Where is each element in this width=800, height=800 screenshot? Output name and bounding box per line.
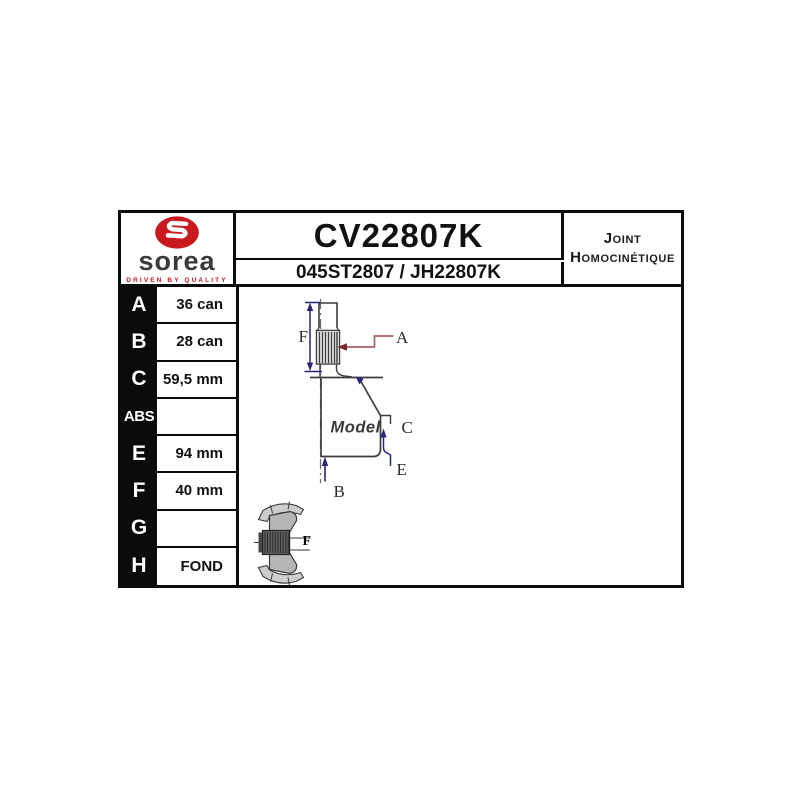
part-number-cell: CV22807K — [236, 213, 564, 260]
arrow-up-icon — [322, 457, 328, 466]
dim-label-c: C — [402, 418, 413, 437]
spec-value: 59,5 mm — [157, 362, 236, 397]
arrow-up-icon — [307, 303, 313, 312]
joint-body-outline — [310, 378, 383, 457]
dim-label-a: A — [396, 328, 409, 347]
spec-row-a: A 36 can — [121, 287, 236, 324]
spec-row-h: H FOND — [121, 548, 236, 585]
spec-key: E — [121, 436, 157, 471]
leader-a: A — [338, 328, 410, 351]
spec-key: G — [121, 511, 157, 546]
spline-hatch — [320, 332, 338, 363]
spec-key: ABS — [121, 399, 157, 434]
model-label: Model — [331, 419, 381, 437]
spec-table: A 36 can B 28 can C 59,5 mm ABS E 94 mm … — [121, 287, 239, 585]
diagram-area: F A B C E — [239, 287, 681, 585]
spec-key: B — [121, 324, 157, 359]
reference-codes: 045ST2807 / JH22807K — [296, 262, 501, 284]
product-type-cell: Joint Homocinétique — [564, 213, 681, 284]
stub-shaft — [317, 303, 353, 378]
logo-s-glyph — [168, 223, 186, 236]
cross-section-icon: F — [254, 502, 311, 586]
dimension-b: B — [322, 457, 345, 501]
spec-value — [157, 511, 236, 546]
spec-key: F — [121, 473, 157, 508]
part-number: CV22807K — [314, 217, 483, 255]
arrow-down-icon — [307, 363, 313, 372]
dim-label-e: E — [397, 460, 407, 479]
spec-value: 28 can — [157, 324, 236, 359]
icon-label-f: F — [303, 534, 312, 549]
spec-key: H — [121, 548, 157, 585]
logo-tagline-text: DRIVEN BY QUALITY — [126, 277, 227, 284]
spec-row-c: C 59,5 mm — [121, 362, 236, 399]
product-type-line1: Joint — [604, 230, 642, 249]
cv-joint-diagram: F A B C E — [239, 287, 681, 585]
spec-value: FOND — [157, 548, 236, 585]
spec-value: 94 mm — [157, 436, 236, 471]
spec-value: 40 mm — [157, 473, 236, 508]
dim-label-f: F — [299, 327, 308, 346]
spec-row-e: E 94 mm — [121, 436, 236, 473]
spec-sheet: sorea DRIVEN BY QUALITY CV22807K 045ST28… — [118, 210, 684, 588]
product-type-line2: Homocinétique — [570, 249, 675, 268]
spec-value: 36 can — [157, 287, 236, 322]
reference-cell: 045ST2807 / JH22807K — [236, 262, 564, 284]
spec-value — [157, 399, 236, 434]
spec-row-abs: ABS — [121, 399, 236, 436]
spec-row-g: G — [121, 511, 236, 548]
logo-brand-text: sorea — [138, 248, 215, 275]
spec-key: A — [121, 287, 157, 322]
sorea-logo-icon — [150, 216, 204, 249]
spec-row-b: B 28 can — [121, 324, 236, 361]
logo-cell: sorea DRIVEN BY QUALITY — [121, 213, 236, 284]
spec-key: C — [121, 362, 157, 397]
dim-label-b: B — [334, 482, 345, 501]
spec-row-f: F 40 mm — [121, 473, 236, 510]
